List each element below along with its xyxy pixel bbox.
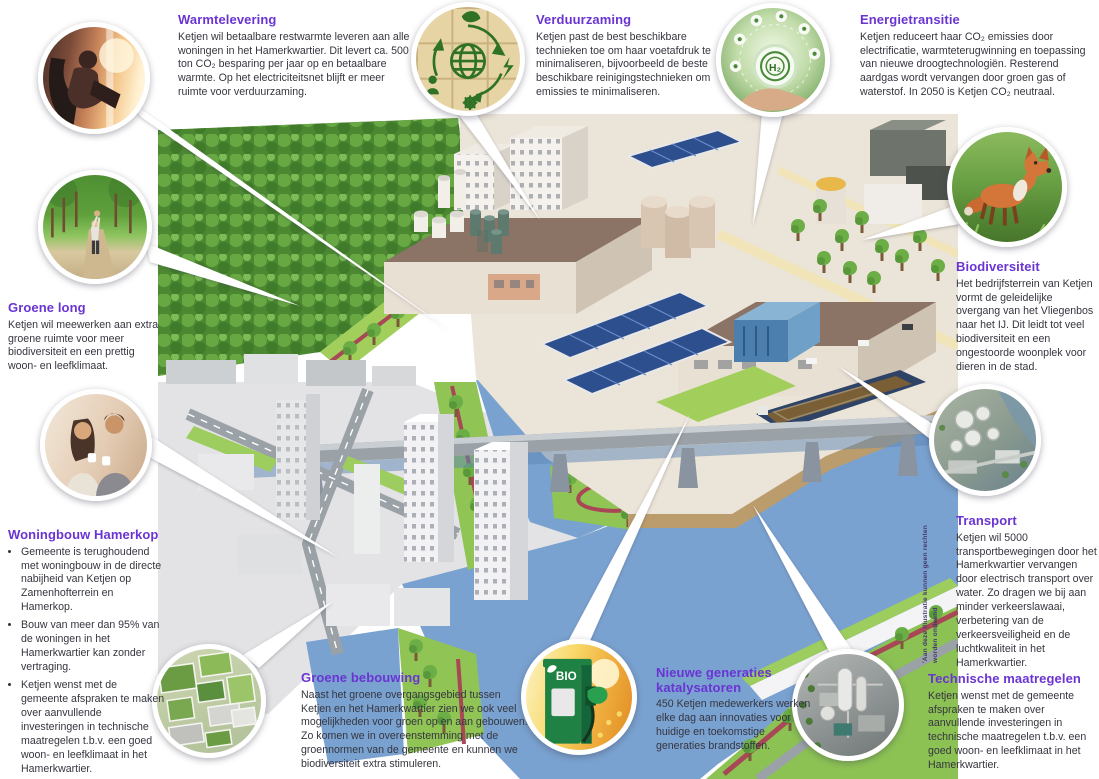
note-groene-long: Groene long Ketjen wil meewerken aan ext…: [8, 301, 164, 374]
note-energietransitie: Energietransitie Ketjen reduceert haar C…: [860, 13, 1098, 100]
note-body: Ketjen wil betaalbare restwarmte leveren…: [178, 31, 414, 101]
note-title: Biodiversiteit: [956, 260, 1097, 275]
note-bullets: Gemeente is terughoudend met woningbouw …: [8, 546, 166, 778]
photo-green-roofs-aerial: [152, 644, 266, 758]
note-body: Ketjen reduceert haar CO₂ emissies door …: [860, 31, 1098, 101]
note-body: Ketjen wil meewerken aan extra groene ru…: [8, 319, 164, 375]
note-body: Ketjen past de best beschikbare techniek…: [536, 31, 716, 101]
note-body: Het bedrijfsterrein van Ketjen vormt de …: [956, 278, 1097, 376]
photo-sustainability-icons-on-wood-blocks: [411, 2, 525, 116]
note-body: Ketjen wenst met de gemeente afspraken t…: [928, 690, 1096, 774]
note-title: Verduurzaming: [536, 13, 716, 28]
note-body: 450 Ketjen medewerkers werken elke dag a…: [656, 698, 811, 754]
illustration-disclaimer: 'Aan deze illustratie kunnen geen rechte…: [921, 521, 941, 663]
note-verduurzaming: Verduurzaming Ketjen past de best beschi…: [536, 13, 716, 100]
note-title: Warmtelevering: [178, 13, 414, 28]
note-title: Energietransitie: [860, 13, 1098, 28]
note-groene-bebouwing: Groene bebouwing Naast het groene overga…: [301, 671, 531, 772]
note-biodiversiteit: Biodiversiteit Het bedrijfsterrein van K…: [956, 260, 1097, 375]
bullet-item: Ketjen wenst met de gemeente afspraken t…: [21, 679, 166, 777]
note-nieuwe-generaties-katalysatoren: Nieuwe generaties katalysatoren 450 Ketj…: [656, 666, 811, 754]
note-title: Woningbouw Hamerkop: [8, 528, 166, 543]
photo-aerial-industrial-waterfront: [929, 384, 1041, 496]
bullet-item: Bouw van meer dan 95% van de woningen in…: [21, 619, 166, 675]
infographic-page: H₂: [0, 0, 1099, 779]
note-title: Transport: [956, 514, 1097, 529]
h2-label: H₂: [769, 63, 782, 74]
photo-family-on-park-path: [38, 170, 152, 284]
photo-woman-by-sunny-window: [38, 22, 150, 134]
note-technische-maatregelen: Technische maatregelen Ketjen wenst met …: [928, 672, 1096, 773]
note-woningbouw-hamerkop: Woningbouw Hamerkop Gemeente is terughou…: [8, 528, 166, 779]
note-warmtelevering: Warmtelevering Ketjen wil betaalbare res…: [178, 13, 414, 100]
note-title: Groene bebouwing: [301, 671, 531, 686]
photo-bio-fuel-pump: BIO: [521, 639, 637, 755]
note-body: Ketjen wil 5000 transportbewegingen door…: [956, 532, 1097, 672]
note-title: Technische maatregelen: [928, 672, 1096, 687]
photo-fox-in-grass: [947, 127, 1067, 247]
bio-label: BIO: [556, 670, 577, 683]
note-title: Groene long: [8, 301, 164, 316]
bullet-item: Gemeente is terughoudend met woningbouw …: [21, 546, 166, 616]
note-body: Naast het groene overgangsgebied tussen …: [301, 689, 531, 773]
note-transport: Transport Ketjen wil 5000 transportbeweg…: [956, 514, 1097, 671]
note-title: Nieuwe generaties katalysatoren: [656, 666, 811, 695]
photo-hand-holding-h2-sphere: H₂: [716, 3, 830, 117]
photo-couple-drinking-coffee: [40, 389, 152, 501]
